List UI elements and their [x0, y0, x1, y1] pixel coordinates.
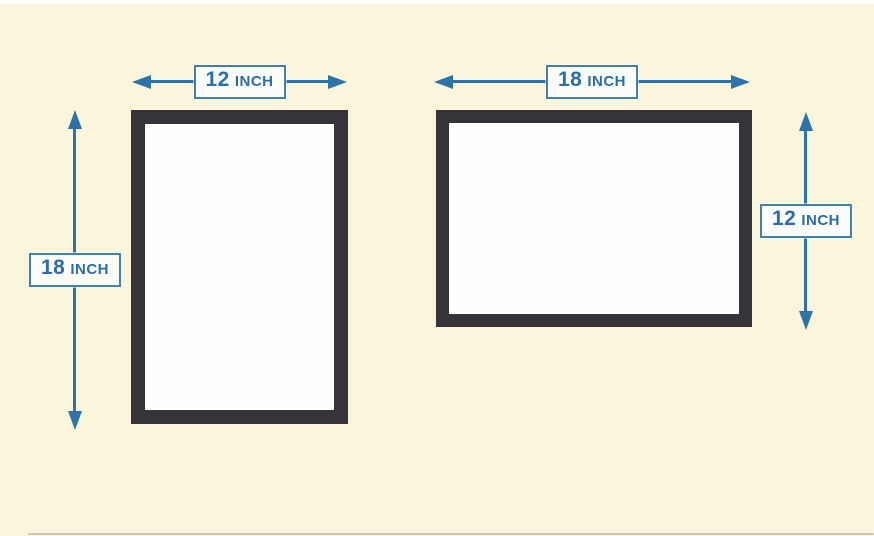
- portrait-frame-12x18: [131, 110, 348, 424]
- landscape-frame-18x12: [436, 110, 752, 327]
- dimension-number: 18: [41, 256, 65, 279]
- dimension-unit: INCH: [70, 261, 109, 278]
- dimension-unit: INCH: [587, 73, 626, 90]
- dimension-number: 18: [558, 68, 582, 91]
- top-edge-highlight: [0, 0, 874, 4]
- arrowhead-left-icon: [434, 75, 453, 89]
- arrowhead-right-icon: [731, 75, 750, 89]
- portrait-height-label: 18INCH: [29, 253, 121, 287]
- landscape-height-label: 12INCH: [760, 204, 852, 238]
- arrowhead-up-icon: [799, 112, 813, 131]
- dimension-unit: INCH: [801, 212, 840, 229]
- landscape-width-dimension: 18INCH: [434, 74, 750, 90]
- arrowhead-down-icon: [799, 311, 813, 330]
- dimension-number: 12: [772, 207, 796, 230]
- arrowhead-left-icon: [132, 75, 151, 89]
- portrait-width-label: 12INCH: [193, 65, 285, 99]
- dimension-number: 12: [205, 68, 229, 91]
- portrait-height-dimension: 18INCH: [67, 110, 83, 430]
- arrowhead-right-icon: [328, 75, 347, 89]
- landscape-height-dimension: 12INCH: [798, 112, 814, 330]
- arrowhead-up-icon: [68, 110, 82, 129]
- portrait-width-dimension: 12INCH: [132, 74, 347, 90]
- arrowhead-down-icon: [68, 411, 82, 430]
- diagram-canvas: 12INCH 18INCH 18INCH 12INCH: [0, 0, 874, 536]
- dimension-unit: INCH: [235, 73, 274, 90]
- landscape-width-label: 18INCH: [546, 65, 638, 99]
- bottom-edge-line: [28, 533, 874, 535]
